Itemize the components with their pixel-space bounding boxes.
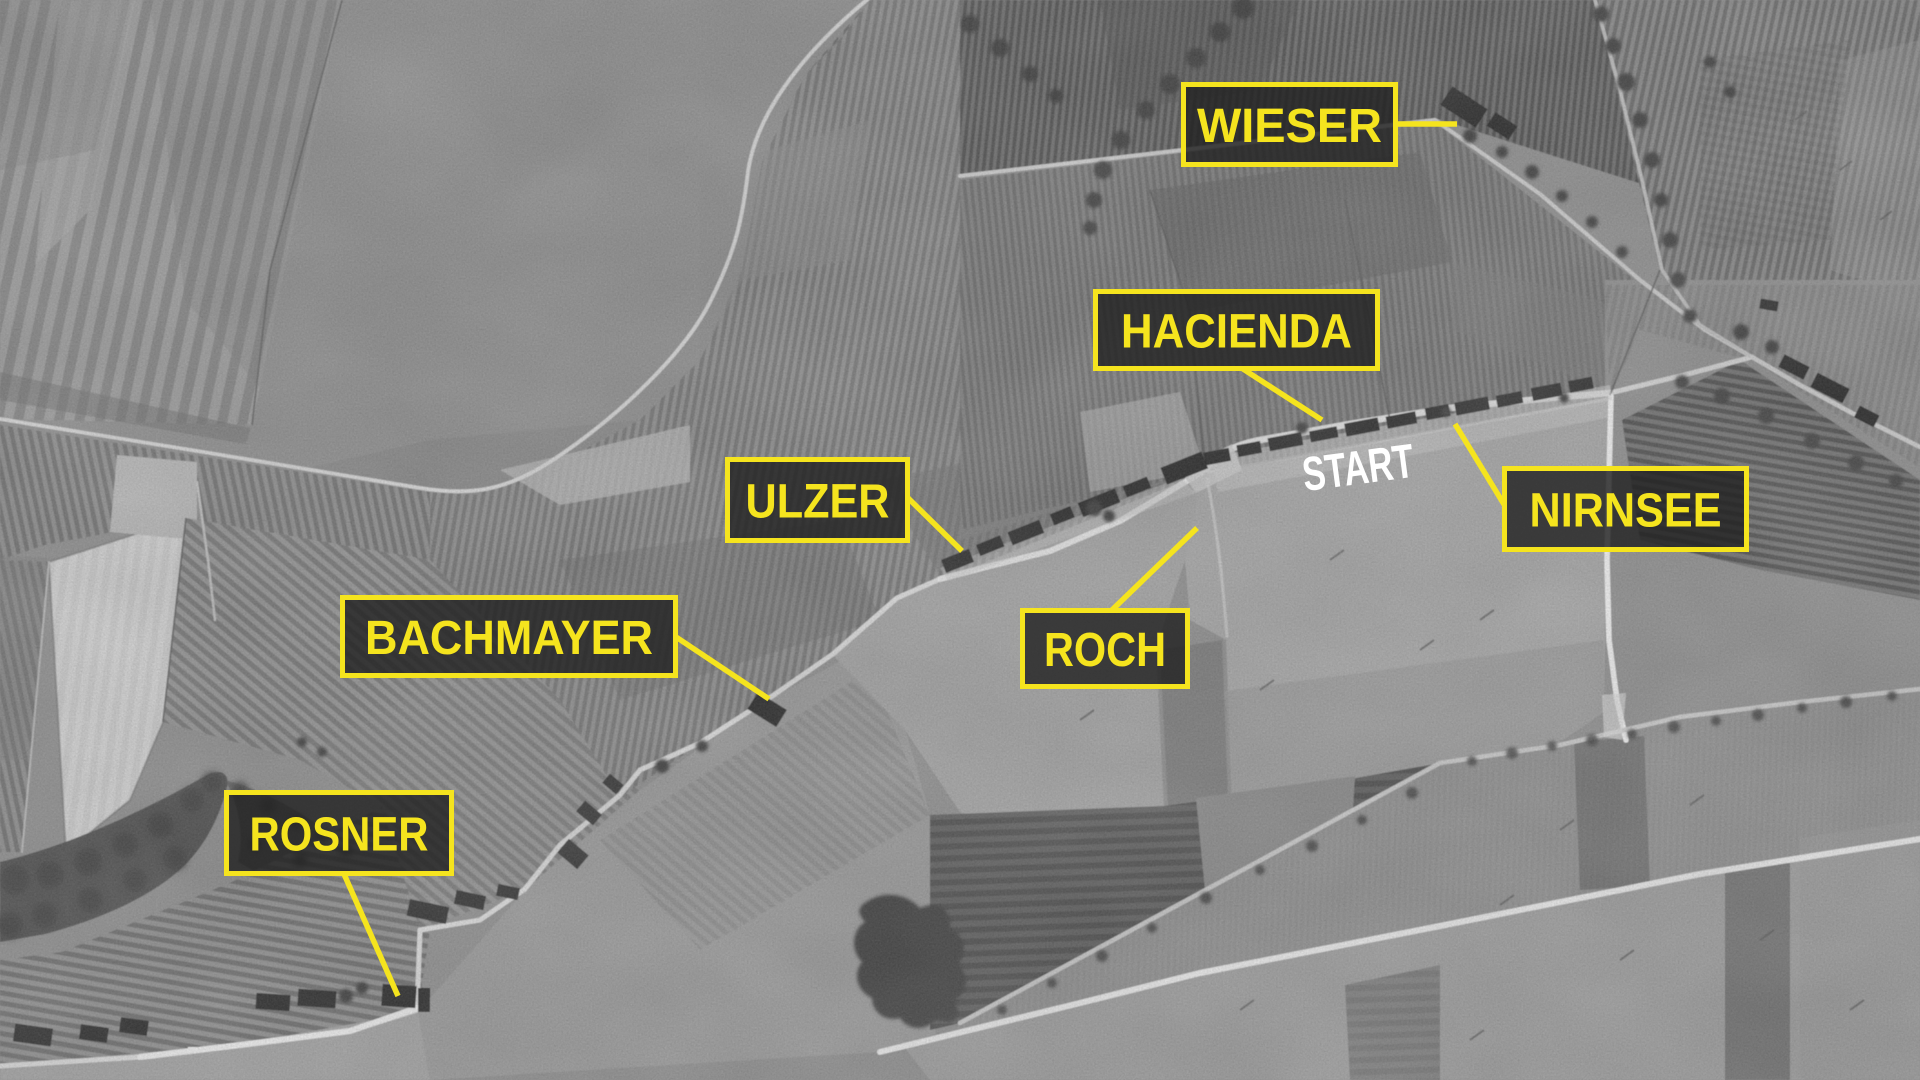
svg-text:ROSNER: ROSNER <box>250 809 429 862</box>
svg-text:ULZER: ULZER <box>746 476 890 529</box>
svg-text:HACIENDA: HACIENDA <box>1121 306 1352 359</box>
svg-text:ROCH: ROCH <box>1044 624 1166 677</box>
svg-text:WIESER: WIESER <box>1197 100 1382 153</box>
svg-text:BACHMAYER: BACHMAYER <box>365 612 653 665</box>
svg-text:NIRNSEE: NIRNSEE <box>1530 485 1722 538</box>
